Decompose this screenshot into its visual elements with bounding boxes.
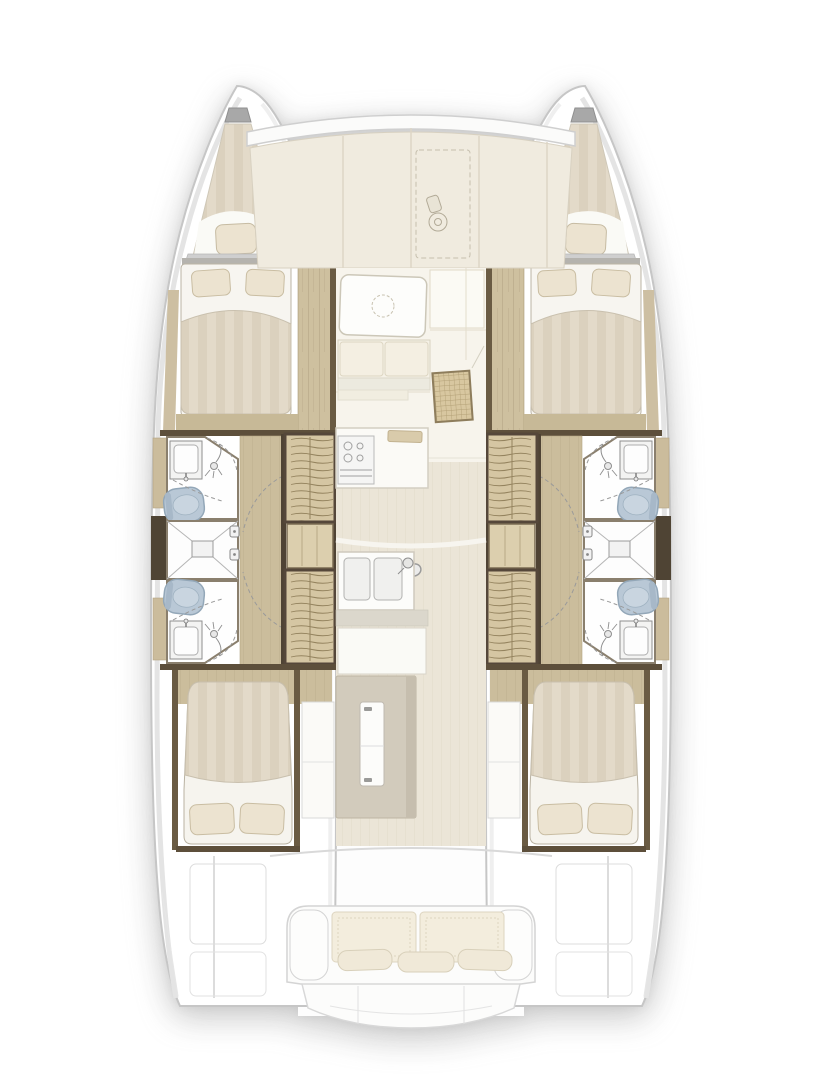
bench-armrest-left <box>290 910 328 980</box>
bench-step <box>338 390 408 400</box>
swim-steps <box>302 984 520 1028</box>
stove <box>338 436 374 484</box>
catamaran-floor-plan <box>0 0 822 1080</box>
aft-bed-pillow-left <box>189 803 235 835</box>
aft-bed-pillow-right <box>239 803 285 835</box>
saloon-table <box>339 274 427 337</box>
hull-passage-floor <box>240 436 284 668</box>
forward-bed-duvet <box>181 310 291 414</box>
galley-and-corridor <box>336 428 486 846</box>
bench-front-edge <box>338 378 430 390</box>
forward-bed-pillow-right <box>245 269 284 297</box>
cockpit-pillow-left <box>338 949 393 971</box>
island-shading <box>406 676 416 818</box>
galley-lower-edge <box>336 610 428 626</box>
aft-head-toilet <box>162 578 205 616</box>
outboard-locker-dark <box>151 516 167 580</box>
sink-basin-right <box>374 558 402 600</box>
galley-counter <box>336 428 428 488</box>
galley-island <box>336 676 416 818</box>
stair-landing <box>287 524 333 568</box>
wicker-chart-seat <box>432 371 472 422</box>
aft-cabin-inner-wall <box>294 670 300 850</box>
sink-faucet <box>403 558 413 568</box>
foredeck <box>247 115 575 268</box>
central-shower <box>167 521 238 579</box>
forward-cabin-foot-floor <box>176 414 298 432</box>
sink-basin-left <box>344 558 370 600</box>
forward-cabin-walkway <box>298 258 332 434</box>
saloon-side-panel <box>430 270 484 328</box>
forward-bed-pillow-left <box>191 269 231 298</box>
bench-cushion <box>340 342 383 376</box>
galley-worktop <box>338 628 426 674</box>
aft-bed-duvet <box>185 682 291 783</box>
stern-bulkhead <box>176 846 300 852</box>
fridge-handle-bottom <box>364 778 372 782</box>
cutting-board <box>388 430 422 442</box>
head-compartments <box>151 434 338 670</box>
fridge-door <box>360 702 384 786</box>
shower-drain <box>192 541 213 557</box>
forward-head-toilet <box>162 486 205 524</box>
fridge-handle-top <box>364 707 372 711</box>
forward-head-sink <box>170 441 202 481</box>
aft-cabin-outer-wall <box>172 670 178 850</box>
cockpit-pillow-center <box>398 952 454 972</box>
bow-fitting <box>225 108 251 122</box>
aft-head-bulkhead <box>160 664 338 670</box>
aft-head-sink <box>170 619 202 659</box>
floor-plan-svg <box>0 0 822 1080</box>
companionway-stairs <box>281 434 338 664</box>
bench-cushion <box>385 342 428 376</box>
bow-pillow <box>215 223 257 255</box>
forward-cabin <box>160 256 338 436</box>
cockpit-pillow-right <box>458 949 513 971</box>
aft-cabin-cabinet <box>302 702 334 818</box>
galley-sink-unit <box>338 552 414 610</box>
